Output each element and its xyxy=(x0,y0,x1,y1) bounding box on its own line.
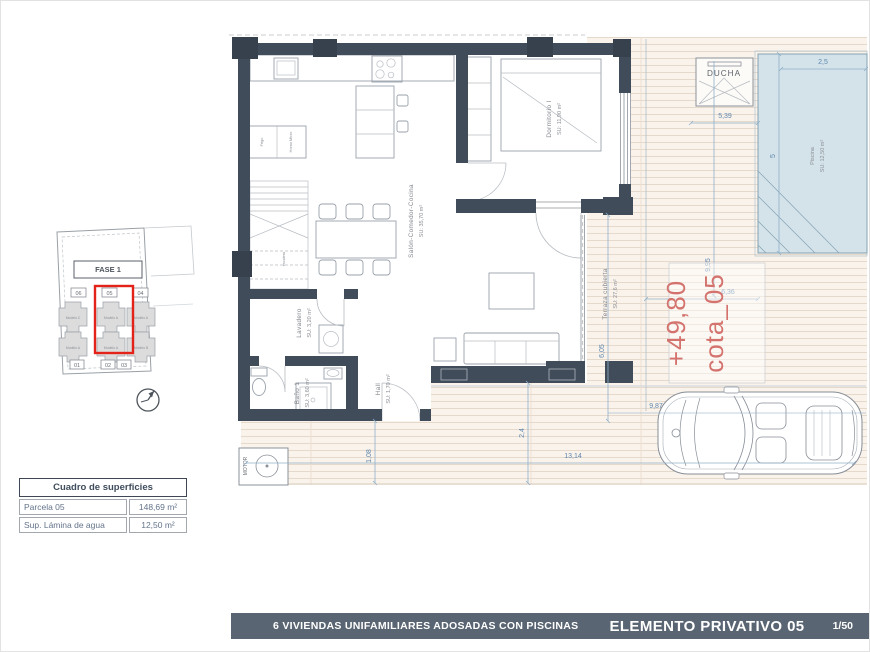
motor-label: MOTOR xyxy=(243,456,249,475)
dim-13-14: 13,14 xyxy=(564,453,582,460)
phase-label: FASE 1 xyxy=(95,265,121,274)
room-label-dormitorio: Dormitorio I xyxy=(546,100,553,137)
surface-row-label: Parcela 05 xyxy=(19,499,127,515)
room-label-piscina: Piscina xyxy=(810,146,816,165)
car-top-view xyxy=(658,387,862,479)
level-mark-name: cota_05 xyxy=(699,273,729,373)
model-label-5: Modelo A xyxy=(104,346,119,350)
model-label-2: Modelo A xyxy=(104,316,119,320)
plot-02: 02 xyxy=(105,363,111,369)
model-label-4: Modelo A xyxy=(66,346,81,350)
pool-motor-box: MOTOR xyxy=(239,448,288,485)
room-label-hall: Hall xyxy=(375,383,382,395)
room-area-hall: SU: 1,70 m² xyxy=(386,374,392,404)
sheet-scale: 1/50 xyxy=(833,620,853,632)
plot-03: 03 xyxy=(121,363,127,369)
sheet-title: ELEMENTO PRIVATIVO 05 xyxy=(609,618,804,635)
level-mark: cota_05 +49,80 xyxy=(661,263,765,383)
room-label-terraza: Terraza cubierta xyxy=(602,268,609,320)
dim-9-87: 9,87 xyxy=(649,403,663,410)
plot-04: 04 xyxy=(137,291,143,297)
title-bar: 6 VIVIENDAS UNIFAMILIARES ADOSADAS CON P… xyxy=(231,613,869,639)
room-label-bano: Baño 1 xyxy=(294,382,301,404)
room-area-lavadero: SU: 3,20 m² xyxy=(307,308,313,338)
surface-table-title: Cuadro de superficies xyxy=(19,478,187,497)
table-row: Sup. Lámina de agua 12,50 m² xyxy=(19,517,187,533)
plot-05: 05 xyxy=(106,291,112,297)
pool: Piscina SU: 12,50 m² xyxy=(755,51,867,256)
surface-row-value: 12,50 m² xyxy=(129,517,187,533)
phase-banner: FASE 1 xyxy=(74,261,142,278)
dim-6-05: 6,05 xyxy=(599,344,606,358)
floor-plan: Piscina SU: 12,50 m² DUCHA xyxy=(229,31,869,491)
surface-row-label: Sup. Lámina de agua xyxy=(19,517,127,533)
stairs-label: escalera xyxy=(282,251,286,266)
surface-row-value: 148,69 m² xyxy=(129,499,187,515)
dim-2-4: 2,4 xyxy=(519,428,526,438)
site-plan: Modelo C Modelo A Modelo A Modelo A Mode… xyxy=(41,216,221,426)
table-row: Parcela 05 148,69 m² xyxy=(19,499,187,515)
project-title: 6 VIVIENDAS UNIFAMILIARES ADOSADAS CON P… xyxy=(273,620,578,632)
plot-06: 06 xyxy=(75,291,81,297)
north-arrow xyxy=(137,389,159,411)
level-mark-value: +49,80 xyxy=(661,280,691,366)
fridge-label: Frigo xyxy=(260,138,264,147)
room-area-dormitorio: SU: 11,90 m² xyxy=(557,103,563,135)
dim-5: 5 xyxy=(770,154,777,158)
dim-2-5: 2,5 xyxy=(818,59,828,66)
model-label-3: Modelo A xyxy=(134,316,149,320)
room-area-bano: SU: 3,60 m² xyxy=(305,378,311,408)
room-label-lavadero: Lavadero xyxy=(296,308,303,338)
room-area-piscina: SU: 12,50 m² xyxy=(820,140,826,173)
plot-01: 01 xyxy=(74,363,80,369)
shower-box: DUCHA xyxy=(696,58,753,106)
drawing-sheet: Piscina SU: 12,50 m² DUCHA xyxy=(0,0,870,652)
oven-label: Horno Micro xyxy=(289,132,293,153)
ducha-label: DUCHA xyxy=(707,69,741,78)
surface-table: Cuadro de superficies Parcela 05 148,69 … xyxy=(19,478,187,533)
room-label-salon: Salón-Comedor-Cocina xyxy=(408,184,415,258)
model-label-1: Modelo C xyxy=(66,316,81,320)
model-label-6: Modelo B xyxy=(134,346,149,350)
dim-1-08: 1,08 xyxy=(366,449,373,463)
room-area-salon: SU: 35,70 m² xyxy=(419,205,425,238)
dim-5-39: 5,39 xyxy=(718,113,732,120)
room-area-terraza: SU: 27,6 m² xyxy=(613,279,619,309)
